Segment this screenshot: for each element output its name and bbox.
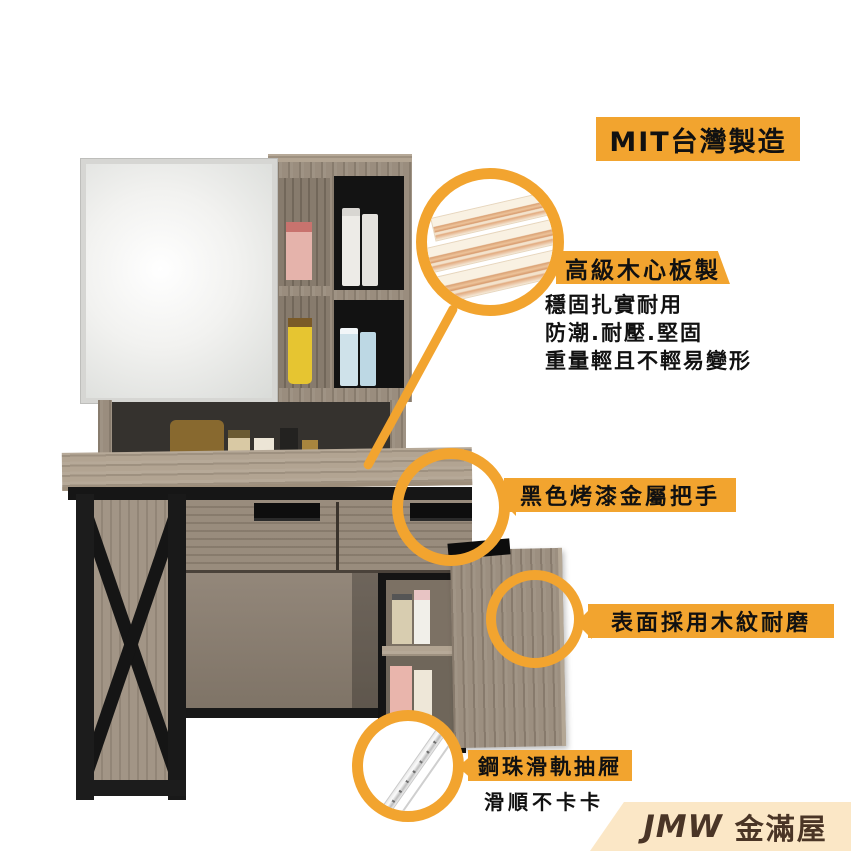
cosmetic-white-bottle-2 [362,214,378,286]
cosmetic-yellow-tube [288,318,312,384]
spray-bottle [414,590,430,644]
brand-logo-band: JMW 金滿屋 [590,802,851,851]
callout-label-plywood: 高級木心板製 [556,251,730,284]
plywood-detail-2: 防潮.耐壓.堅固 [545,319,752,347]
plywood-detail-3: 重量輕且不輕易變形 [545,347,752,375]
callout-details-plywood: 穩固扎實耐用 防潮.耐壓.堅固 重量輕且不輕易變形 [545,291,752,375]
cosmetic-pink-box [286,222,312,280]
callout-label-rail: 鋼珠滑軌抽屜 [468,750,632,781]
cosmetic-blue-bottle-2 [360,332,376,386]
callout-circle-surface [486,570,584,668]
mirror-glass [86,164,272,398]
callout-label-handle: 黑色烤漆金屬把手 [504,478,736,512]
side-cabinet-shelf-board [382,646,460,656]
drawer-divider [336,502,339,570]
leg-upright-right [168,494,186,800]
callout-circle-rail [352,710,464,822]
desk-interior-floor-rail [186,708,388,718]
slide-rail-bar [371,721,451,822]
plywood-detail-1: 穩固扎實耐用 [545,291,752,319]
slide-rail-holes [378,729,445,822]
drawer-handle-left [254,503,320,521]
cosmetic-white-bottle-1 [342,208,360,286]
made-in-taiwan-badge: MIT台灣製造 [596,117,800,161]
callout-circle-plywood [416,168,564,316]
callout-detail-rail: 滑順不卡卡 [484,786,604,815]
product-annotation-image: MIT台灣製造 高級木心板製 穩固扎實耐用 防潮.耐壓.堅固 重量輕且不輕易變形… [0,0,851,851]
leg-bottom-rail [76,780,186,796]
callout-circle-handle [392,448,510,566]
cosmetic-blue-bottle-1 [340,328,358,386]
perfume-bottle [392,594,412,644]
leg-upright-left [76,494,94,800]
brand-name-en: JMW [643,809,723,845]
brand-name-zh: 金滿屋 [735,806,828,848]
callout-label-surface: 表面採用木紋耐磨 [588,604,834,638]
